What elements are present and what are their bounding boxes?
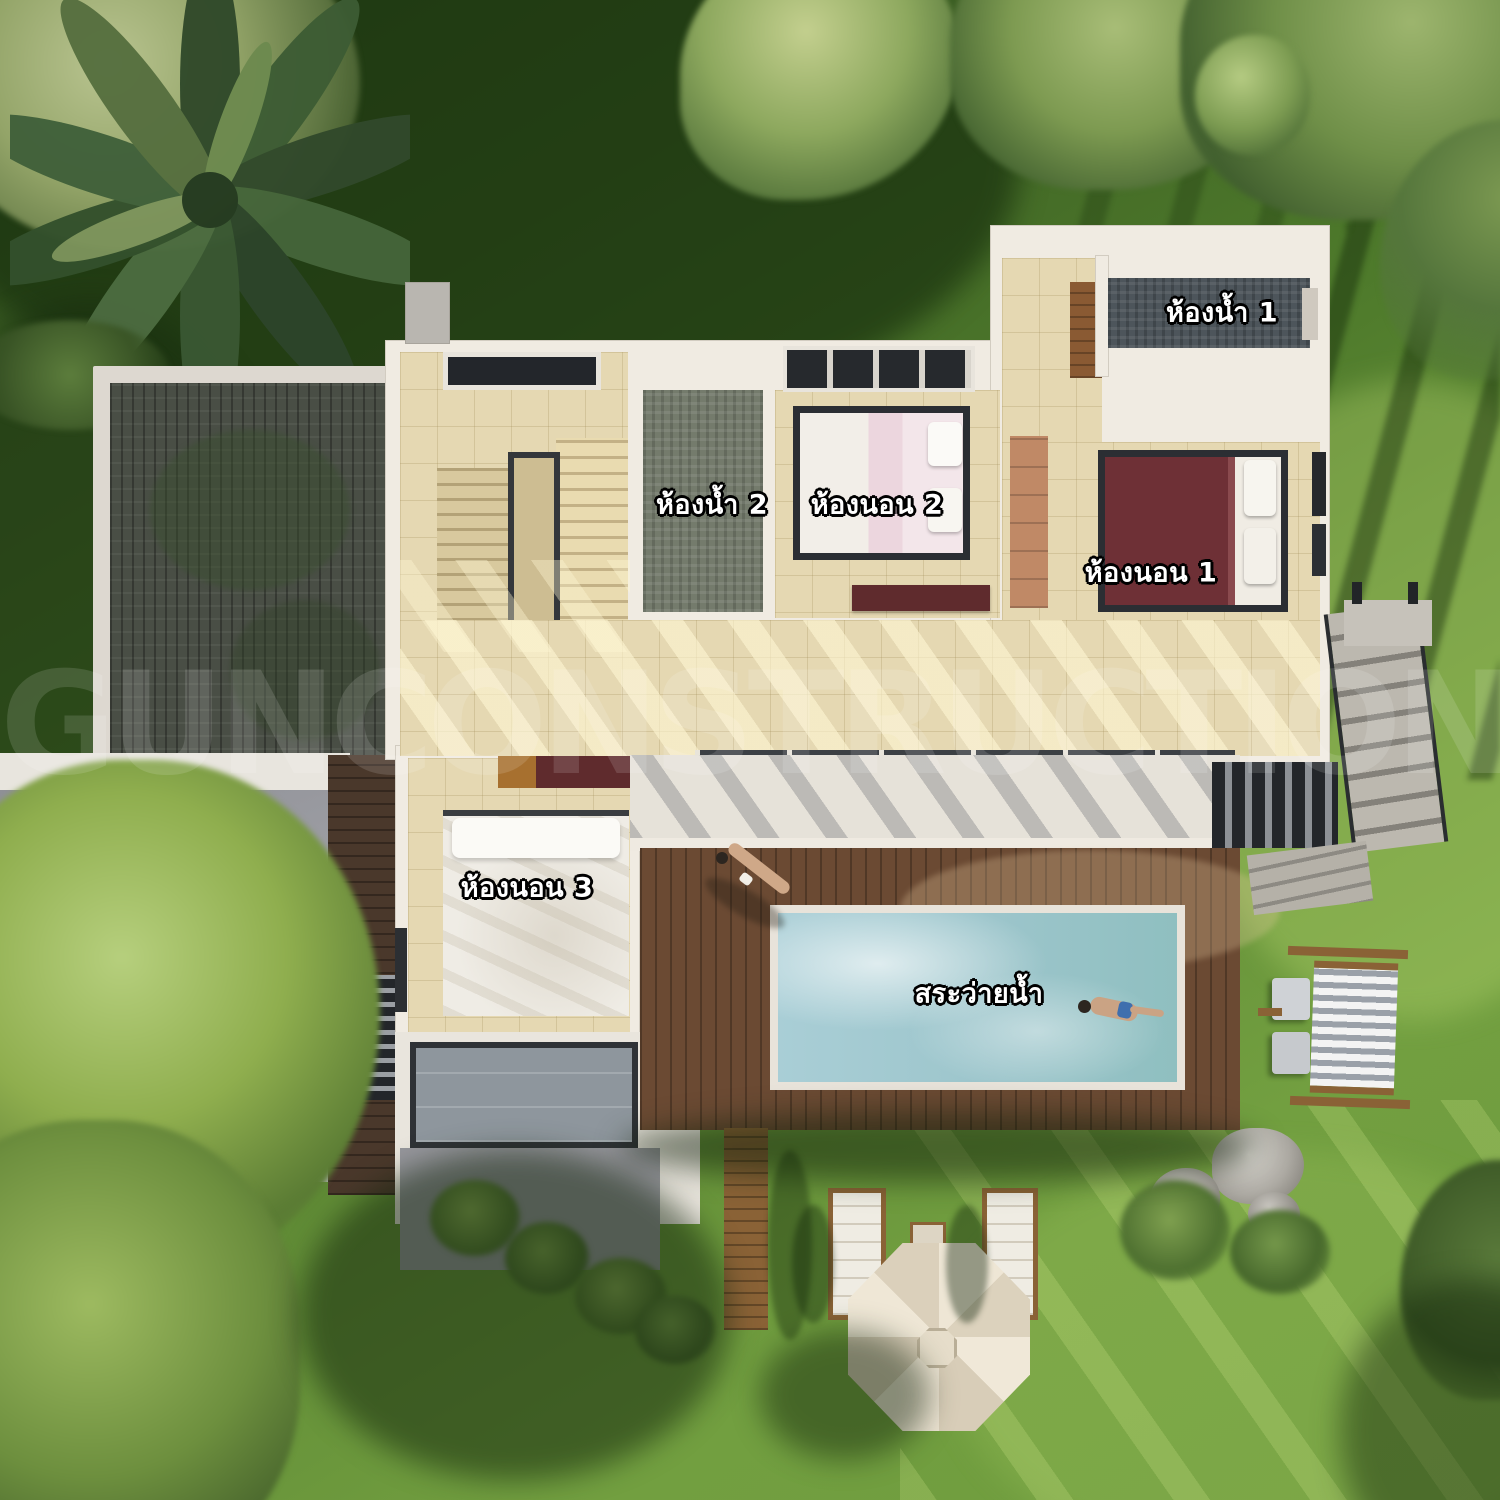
- bathroom-1-door: [1302, 288, 1318, 340]
- bedroom-2-dresser: [852, 585, 990, 611]
- label-bedroom-1: ห้องนอน 1: [1085, 551, 1218, 594]
- deck-shadow-lawn: [620, 1112, 1260, 1182]
- rock-garden-plants-2: [1230, 1210, 1330, 1294]
- bedroom-1-pillow-top: [1244, 460, 1276, 516]
- label-bedroom-2: ห้องนอน 2: [811, 483, 944, 526]
- bedroom-2-window-bay: [783, 346, 975, 392]
- picnic-table-canopy: [1310, 961, 1399, 1096]
- entry-wall-stub: [405, 282, 450, 344]
- bedroom-3-pillows: [452, 818, 620, 858]
- label-bathroom-1: ห้องน้ำ 1: [1166, 291, 1278, 334]
- swimmer-head: [1078, 1000, 1091, 1013]
- tree-shadow-bottomleft: [300, 1150, 730, 1480]
- stair-post-right: [1408, 582, 1418, 604]
- bedroom-3-dresser-wood: [498, 756, 536, 788]
- stairhall-sun-stripes: [400, 560, 630, 652]
- bedroom-1-pillow-bottom: [1244, 528, 1276, 584]
- sunbather-head: [716, 852, 728, 864]
- patio-louvers: [1212, 762, 1338, 848]
- shrub-topright: [1195, 35, 1310, 155]
- walkway-shadow: [768, 1150, 812, 1340]
- picnic-chair-arm: [1258, 1008, 1282, 1016]
- lower-terrace-glass: [410, 1042, 638, 1148]
- lower-roof-moss-2: [230, 600, 380, 740]
- stair-skylight: [443, 352, 601, 390]
- bedroom-1-wardrobe: [1010, 436, 1048, 608]
- bedroom-1-window-right: [1312, 452, 1326, 516]
- bedroom-2-pillow-top: [928, 422, 962, 466]
- balcony-shadow-stripes: [630, 755, 1240, 851]
- lounger-right-shadow: [946, 1205, 988, 1323]
- bathroom-1-partition: [1095, 255, 1109, 377]
- rock-garden-plants: [1120, 1180, 1230, 1280]
- lower-roof-moss: [150, 430, 350, 590]
- label-bathroom-2: ห้องน้ำ 2: [656, 483, 768, 526]
- label-bedroom-3: ห้องนอน 3: [461, 866, 594, 909]
- umbrella-shadow: [760, 1330, 930, 1460]
- stair-post-left: [1352, 582, 1362, 604]
- aerial-house-render: GUNCONSTRUCTION1997 ห้องน้ำ 1 ห้องน้ำ 2 …: [0, 0, 1500, 1500]
- picnic-chair-bottom: [1272, 1032, 1310, 1074]
- bedroom-1-window-right-2: [1312, 524, 1326, 576]
- umbrella-cap: [917, 1328, 957, 1368]
- exterior-stair-landing: [1344, 600, 1432, 646]
- bedroom-3-window-left: [395, 928, 407, 1012]
- label-swimming-pool: สระว่ายน้ำ: [915, 972, 1044, 1015]
